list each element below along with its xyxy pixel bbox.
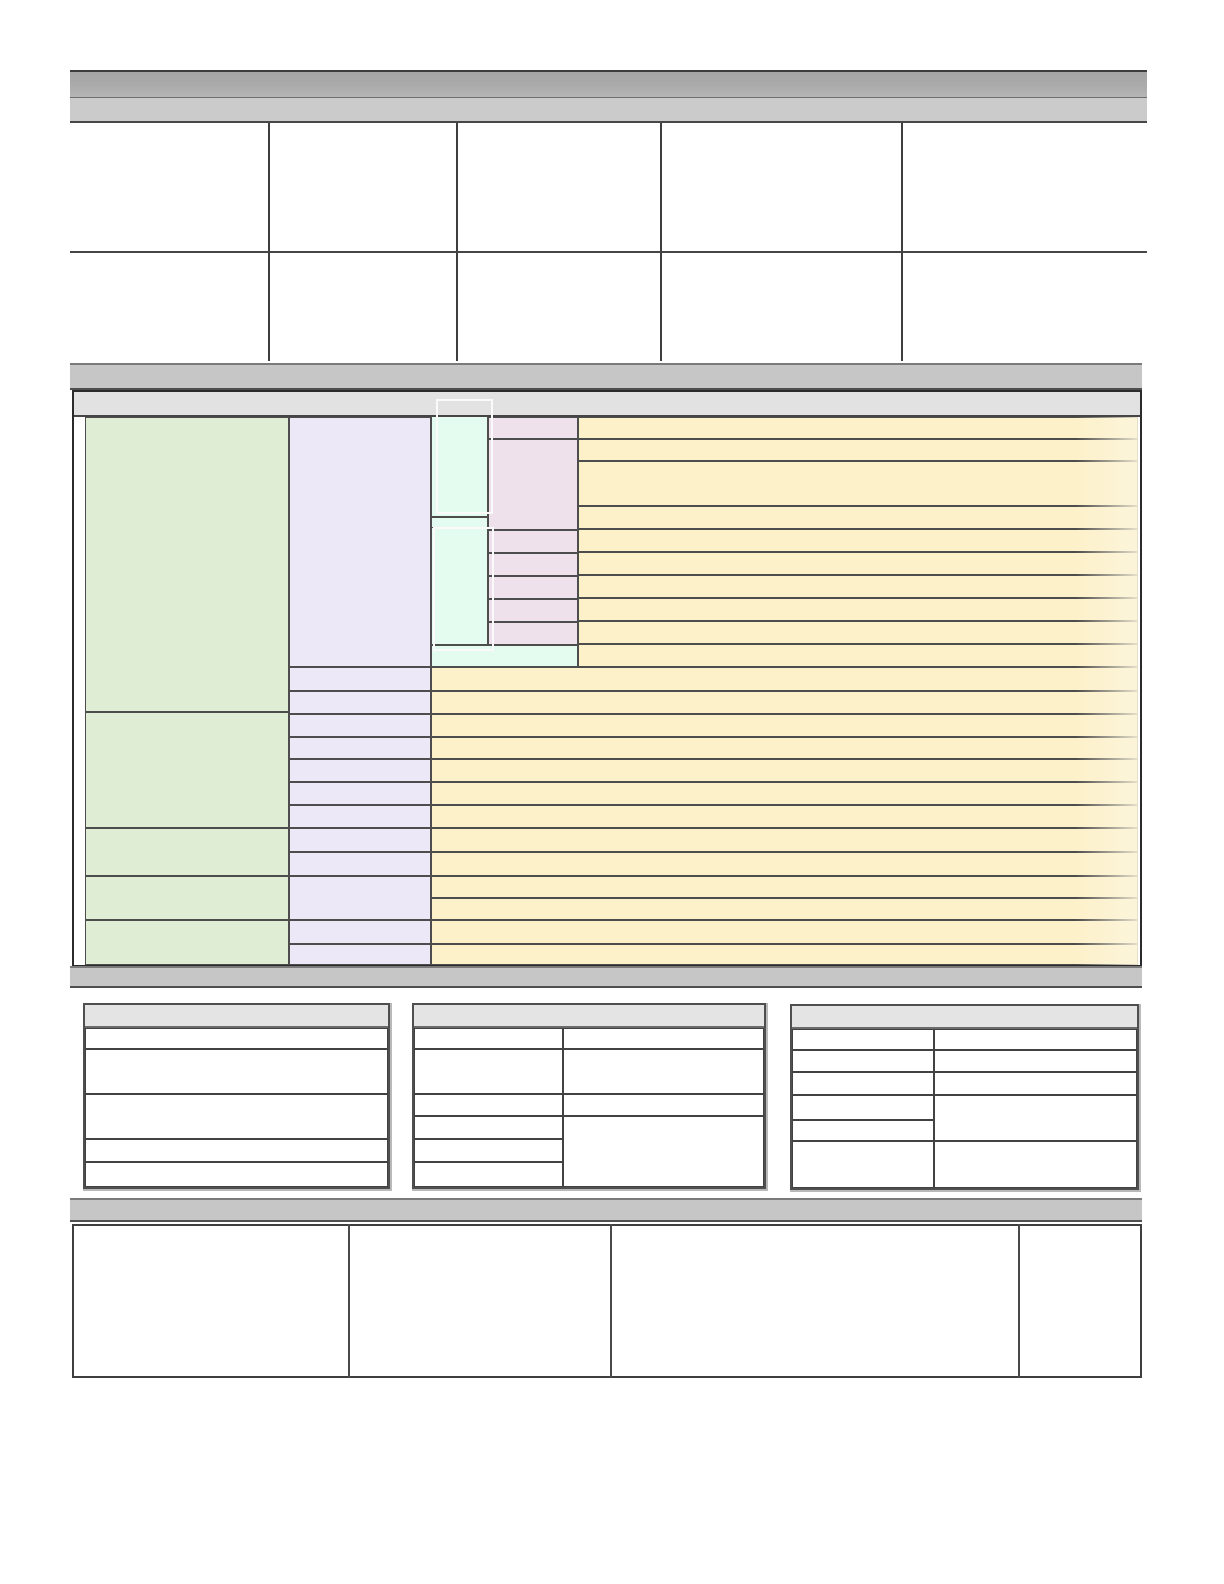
schedule-cell-lavender[interactable] (289, 828, 431, 852)
summary-table-left-cell[interactable] (85, 1049, 388, 1094)
summary-table-left-cell[interactable] (85, 1162, 388, 1187)
footer-table-cell[interactable] (1020, 1224, 1142, 1378)
schedule-cell-lavender[interactable] (289, 737, 431, 759)
schedule-cell-pink[interactable] (488, 599, 578, 622)
schedule-cell-pink[interactable] (488, 553, 578, 576)
summary-table-right-cell[interactable] (792, 1141, 934, 1188)
section-divider-bar-1 (70, 363, 1142, 390)
summary-table-middle-cell[interactable] (563, 1028, 764, 1049)
blank-form-page (0, 0, 1224, 1584)
top-info-cell[interactable] (903, 123, 1147, 253)
schedule-cell-yellow[interactable] (431, 852, 1138, 876)
summary-table-middle-cell[interactable] (563, 1116, 764, 1187)
summary-table-left-header (85, 1005, 388, 1028)
schedule-cell-yellow[interactable] (431, 898, 1138, 920)
schedule-cell-pink[interactable] (488, 530, 578, 553)
summary-table-left-cell[interactable] (85, 1139, 388, 1162)
footer-table-cell[interactable] (72, 1224, 350, 1378)
summary-table-right-cell[interactable] (792, 1050, 934, 1072)
schedule-cell-yellow[interactable] (578, 529, 1138, 552)
schedule-cell-yellow[interactable] (431, 782, 1138, 805)
schedule-cell-green[interactable] (85, 920, 289, 965)
summary-table-middle-cell[interactable] (414, 1162, 563, 1187)
schedule-cell-yellow[interactable] (578, 506, 1138, 529)
schedule-cell-lavender[interactable] (289, 759, 431, 782)
schedule-cell-yellow[interactable] (578, 621, 1138, 644)
top-info-cell[interactable] (270, 253, 458, 361)
summary-table-right-cell[interactable] (792, 1095, 934, 1120)
schedule-cell-yellow[interactable] (431, 667, 1138, 691)
highlight-box (436, 399, 493, 514)
summary-table-middle-cell[interactable] (414, 1116, 563, 1139)
summary-table-right-header (792, 1006, 1137, 1029)
top-info-cell[interactable] (70, 123, 270, 253)
schedule-cell-lavender[interactable] (289, 417, 431, 667)
schedule-cell-yellow[interactable] (431, 920, 1138, 944)
section-divider-bar-3 (70, 1198, 1142, 1222)
schedule-cell-yellow[interactable] (431, 737, 1138, 759)
summary-table-right-cell[interactable] (934, 1141, 1137, 1188)
column-header-band (74, 392, 1140, 417)
schedule-cell-yellow[interactable] (578, 461, 1138, 506)
top-info-cell[interactable] (70, 253, 270, 361)
schedule-cell-pink[interactable] (488, 622, 578, 645)
schedule-cell-yellow[interactable] (578, 417, 1138, 439)
summary-table-left-cell[interactable] (85, 1028, 388, 1049)
schedule-cell-lavender[interactable] (289, 691, 431, 714)
schedule-cell-pink[interactable] (488, 576, 578, 599)
schedule-cell-yellow[interactable] (431, 714, 1138, 737)
summary-table-right-cell[interactable] (792, 1072, 934, 1095)
schedule-cell-lavender[interactable] (289, 876, 431, 920)
schedule-cell-yellow[interactable] (578, 575, 1138, 598)
top-info-cell[interactable] (662, 123, 903, 253)
schedule-cell-green[interactable] (85, 828, 289, 876)
summary-table-right-cell[interactable] (934, 1029, 1137, 1050)
schedule-cell-lavender[interactable] (289, 667, 431, 691)
summary-table-middle-cell[interactable] (563, 1049, 764, 1094)
schedule-cell-lavender[interactable] (289, 714, 431, 737)
summary-table-middle-header (414, 1005, 764, 1028)
summary-table-left-cell[interactable] (85, 1094, 388, 1139)
schedule-cell-lavender[interactable] (289, 782, 431, 805)
schedule-cell-lavender[interactable] (289, 944, 431, 965)
schedule-cell-lavender[interactable] (289, 852, 431, 876)
summary-table-middle-cell[interactable] (414, 1094, 563, 1116)
summary-table-right-cell[interactable] (934, 1095, 1137, 1141)
schedule-cell-pink[interactable] (488, 439, 578, 530)
top-info-cell[interactable] (903, 253, 1147, 361)
top-info-cell[interactable] (662, 253, 903, 361)
schedule-cell-green[interactable] (85, 876, 289, 920)
schedule-cell-lavender[interactable] (289, 920, 431, 944)
schedule-cell-yellow[interactable] (578, 644, 1138, 667)
top-info-cell[interactable] (458, 253, 662, 361)
schedule-cell-yellow[interactable] (431, 944, 1138, 965)
summary-table-middle-cell[interactable] (563, 1094, 764, 1116)
schedule-cell-yellow[interactable] (431, 805, 1138, 828)
schedule-cell-green[interactable] (85, 417, 289, 712)
header-bar-secondary (70, 98, 1147, 123)
summary-table-right-cell[interactable] (792, 1029, 934, 1050)
highlight-box (433, 527, 494, 651)
mint-cell-divider (431, 516, 488, 518)
top-info-cell[interactable] (458, 123, 662, 253)
schedule-cell-yellow[interactable] (578, 598, 1138, 621)
summary-table-middle-cell[interactable] (414, 1049, 563, 1094)
schedule-cell-lavender[interactable] (289, 805, 431, 828)
schedule-cell-pink[interactable] (488, 417, 578, 439)
summary-table-right-cell[interactable] (792, 1120, 934, 1141)
section-divider-bar-2 (70, 966, 1142, 988)
schedule-cell-yellow[interactable] (431, 828, 1138, 852)
summary-table-right-cell[interactable] (934, 1072, 1137, 1095)
schedule-cell-yellow[interactable] (578, 439, 1138, 461)
header-bar-primary (70, 70, 1147, 98)
summary-table-middle-cell[interactable] (414, 1028, 563, 1049)
schedule-cell-green[interactable] (85, 712, 289, 828)
schedule-cell-yellow[interactable] (431, 691, 1138, 714)
summary-table-right-cell[interactable] (934, 1050, 1137, 1072)
top-info-cell[interactable] (270, 123, 458, 253)
summary-table-middle-cell[interactable] (414, 1139, 563, 1162)
left-gutter (74, 417, 85, 965)
footer-table-cell[interactable] (350, 1224, 612, 1378)
schedule-cell-yellow[interactable] (578, 552, 1138, 575)
schedule-cell-yellow[interactable] (431, 759, 1138, 782)
footer-table-cell[interactable] (612, 1224, 1020, 1378)
schedule-cell-yellow[interactable] (431, 876, 1138, 898)
